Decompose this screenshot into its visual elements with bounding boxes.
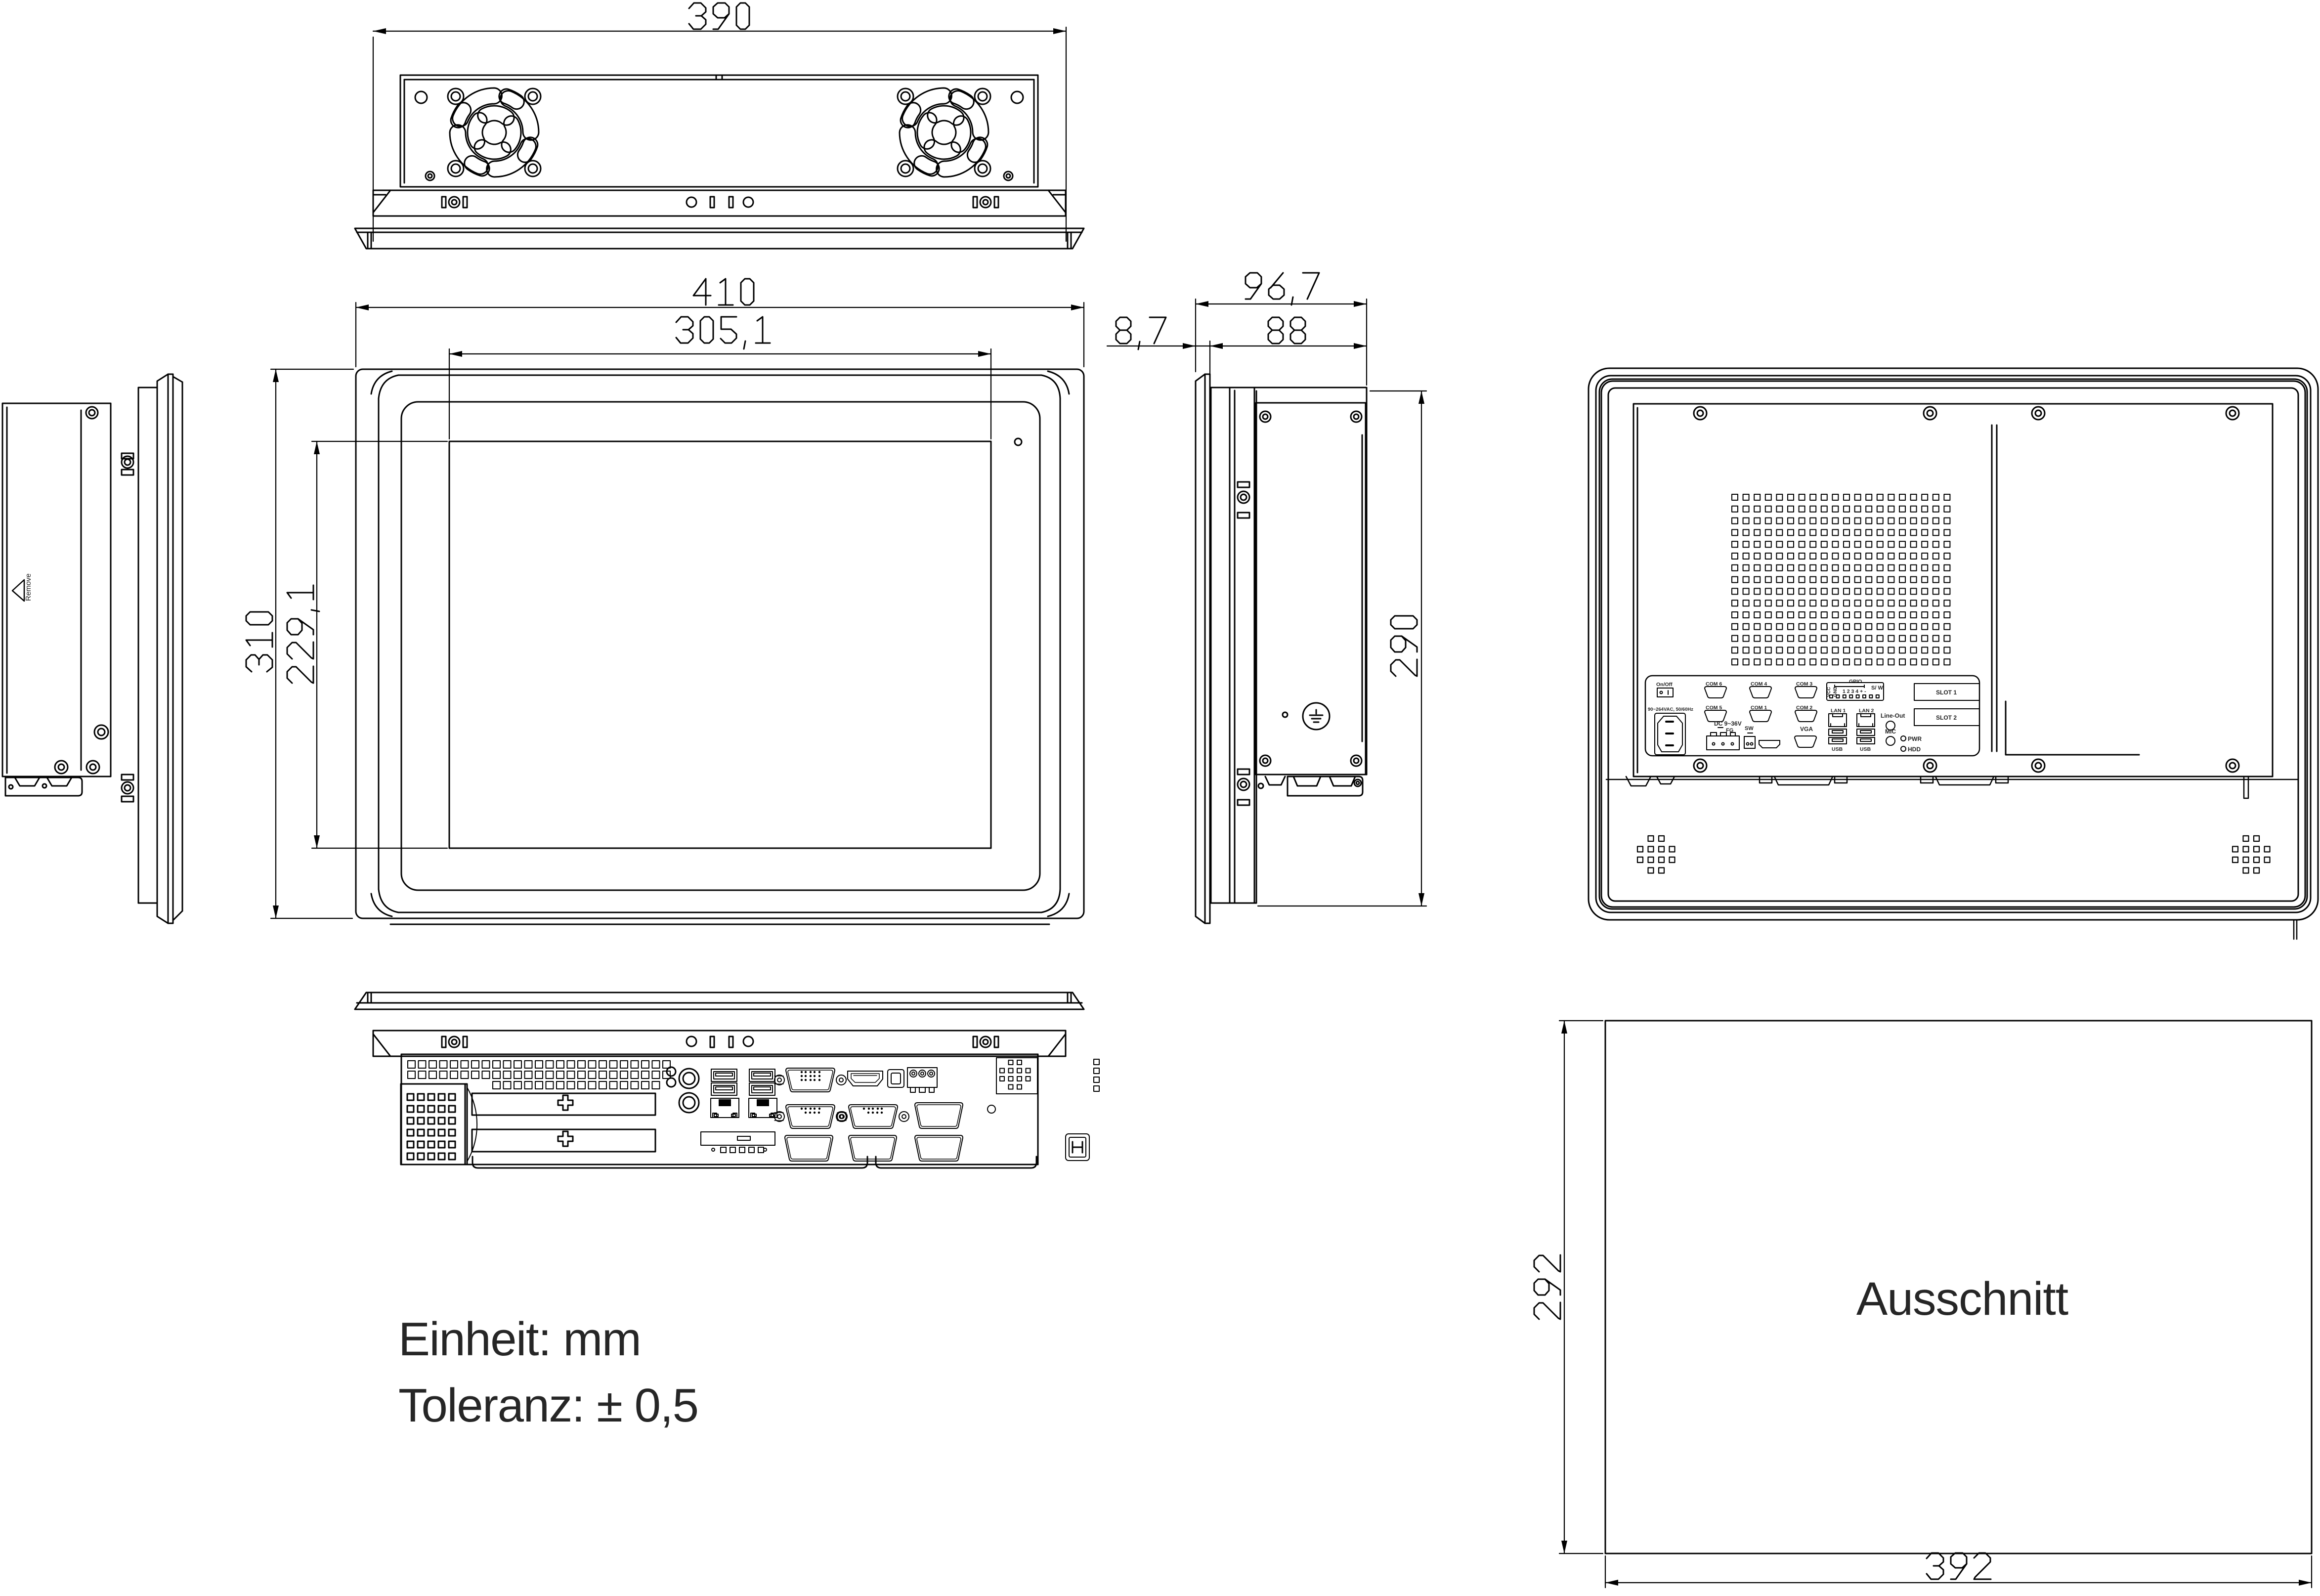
svg-text:Ausschnitt: Ausschnitt: [1856, 1273, 2068, 1325]
svg-text:VGA: VGA: [1800, 726, 1813, 733]
svg-text:LAN 2: LAN 2: [1859, 708, 1874, 714]
svg-text:On/Off: On/Off: [1656, 682, 1673, 688]
svg-text:90~264VAC, 50/60Hz: 90~264VAC, 50/60Hz: [1648, 707, 1693, 712]
svg-text:Line-Out: Line-Out: [1881, 712, 1905, 719]
svg-text:SLOT 1: SLOT 1: [1936, 689, 1957, 696]
svg-text:PWR: PWR: [1908, 735, 1922, 742]
svg-text:1 2 3 4 + -: 1 2 3 4 + -: [1843, 689, 1866, 694]
svg-text:SLOT 2: SLOT 2: [1936, 714, 1957, 721]
svg-text:Toleranz: ± 0,5: Toleranz: ± 0,5: [398, 1379, 698, 1432]
svg-text:S/ W: S/ W: [1871, 685, 1883, 691]
svg-text:DC 9~36V: DC 9~36V: [1714, 720, 1742, 727]
svg-text:LAN 1: LAN 1: [1831, 708, 1846, 714]
svg-text:USB: USB: [1860, 746, 1871, 752]
svg-text:GPIO: GPIO: [1849, 679, 1862, 685]
svg-text:Einheit: mm: Einheit: mm: [398, 1313, 641, 1366]
svg-text:MIC: MIC: [1885, 728, 1896, 735]
svg-text:Remove: Remove: [24, 573, 33, 601]
svg-text:SW: SW: [1745, 726, 1754, 732]
svg-text:USB: USB: [1832, 746, 1843, 752]
svg-text:HDD: HDD: [1908, 746, 1921, 753]
